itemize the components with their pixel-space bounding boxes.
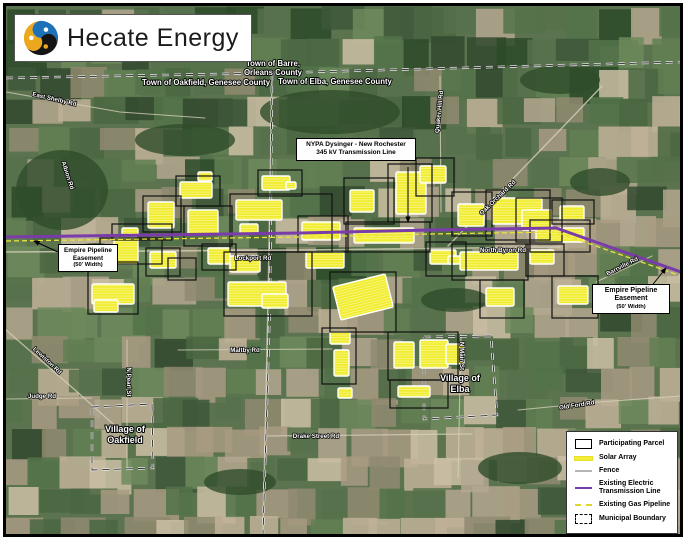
empire-pipeline-callout-left: Empire Pipeline Easement (50' Width) xyxy=(58,244,118,272)
map-label-lockport-rd: Lockport Rd xyxy=(235,255,272,262)
solar-array xyxy=(460,252,518,270)
solar-array xyxy=(558,286,588,304)
municipal-dashed-box-symbol xyxy=(575,514,592,524)
map-canvas: Town of Barre,Orleans CountyTown of Oakf… xyxy=(3,3,683,537)
solar-array xyxy=(94,300,118,312)
legend-label: Fence xyxy=(599,467,619,475)
map-label-n-pearl-st: N Pearl St xyxy=(125,367,132,396)
map-label-town-of-barre-: Town of Barre, xyxy=(246,59,300,68)
map-label-town-of-elba-genesee-county: Town of Elba, Genesee County xyxy=(278,77,392,86)
map-label-n-main-st: N Main St xyxy=(458,342,465,370)
logo-plate: Hecate Energy xyxy=(14,14,252,62)
map-label-oakfield: Oakfield xyxy=(107,435,143,445)
legend-item-municipal-boundary: Municipal Boundary xyxy=(573,514,671,524)
map-label-drake-street-rd: Drake Street Rd xyxy=(293,433,340,440)
solar-array xyxy=(420,340,448,368)
parcel-outline-symbol xyxy=(575,439,592,449)
solar-array xyxy=(236,200,282,220)
map-label-village-of: Village of xyxy=(440,373,481,383)
solar-array xyxy=(394,342,414,368)
map-label-north-byron-rd: North Byron Rd xyxy=(480,247,526,254)
legend-item-fence: Fence xyxy=(573,467,671,475)
solar-array xyxy=(150,252,176,268)
solar-line-symbol xyxy=(574,456,593,461)
legend: Participating Parcel Solar Array Fence E… xyxy=(566,431,678,534)
map-sheet: Town of Barre,Orleans CountyTown of Oakf… xyxy=(0,0,686,540)
solar-array xyxy=(330,332,350,344)
legend-item-participating-parcel: Participating Parcel xyxy=(573,439,671,449)
fence-line-symbol xyxy=(575,470,592,472)
map-label-maltby-rd: Maltby Rd xyxy=(230,347,260,354)
empire-right-note: (50' Width) xyxy=(594,304,668,311)
solar-array xyxy=(262,294,288,308)
hecate-swirl-icon xyxy=(22,19,60,57)
electric-line-symbol xyxy=(575,487,592,489)
solar-array xyxy=(338,388,352,398)
legend-item-electric-transmission: Existing Electric Transmission Line xyxy=(573,480,671,496)
nypa-transmission-callout: NYPA Dysinger - New Rochester 345 kV Tra… xyxy=(296,138,416,161)
solar-array xyxy=(286,182,296,189)
map-label-village-of: Village of xyxy=(105,424,146,434)
empire-pipeline-callout-right: Empire Pipeline Easement (50' Width) xyxy=(592,284,670,314)
solar-array xyxy=(350,190,374,212)
solar-array xyxy=(188,210,218,234)
solar-array xyxy=(208,248,230,264)
nypa-callout-line1: NYPA Dysinger - New Rochester xyxy=(298,141,414,149)
gas-dashed-line-symbol xyxy=(575,504,592,506)
legend-label: Existing Gas Pipeline xyxy=(599,501,670,509)
map-label-orleans-county: Orleans County xyxy=(244,68,303,77)
solar-array xyxy=(486,288,514,306)
legend-item-gas-pipeline: Existing Gas Pipeline xyxy=(573,501,671,509)
legend-item-solar-array: Solar Array xyxy=(573,454,671,462)
legend-label: Existing Electric Transmission Line xyxy=(599,480,671,496)
solar-array xyxy=(334,350,349,376)
map-label-town-of-oakfield-genesee-county: Town of Oakfield, Genesee County xyxy=(142,78,271,87)
nypa-callout-line2: 345 kV Transmission Line xyxy=(298,149,414,157)
legend-label: Solar Array xyxy=(599,454,636,462)
legend-label: Participating Parcel xyxy=(599,440,664,448)
empire-left-note: (50' Width) xyxy=(60,262,116,269)
map-label-elba: Elba xyxy=(450,384,470,394)
solar-array xyxy=(448,256,460,264)
solar-array xyxy=(180,182,212,198)
logo-wordmark: Hecate Energy xyxy=(67,24,239,53)
solar-array xyxy=(398,386,430,397)
legend-label: Municipal Boundary xyxy=(599,515,666,523)
solar-array xyxy=(420,166,446,183)
empire-left-title: Empire Pipeline Easement xyxy=(60,247,116,262)
map-label-judge-rd: Judge Rd xyxy=(28,393,56,400)
empire-right-title: Empire Pipeline Easement xyxy=(594,287,668,304)
solar-array xyxy=(560,206,584,220)
